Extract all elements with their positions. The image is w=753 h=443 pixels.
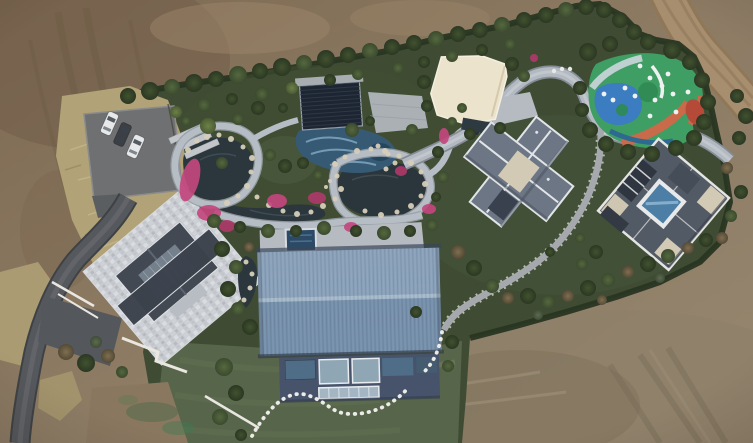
photo-vignette [0,0,753,443]
aerial-photo-canvas [0,0,753,443]
aerial-photo [0,0,753,443]
